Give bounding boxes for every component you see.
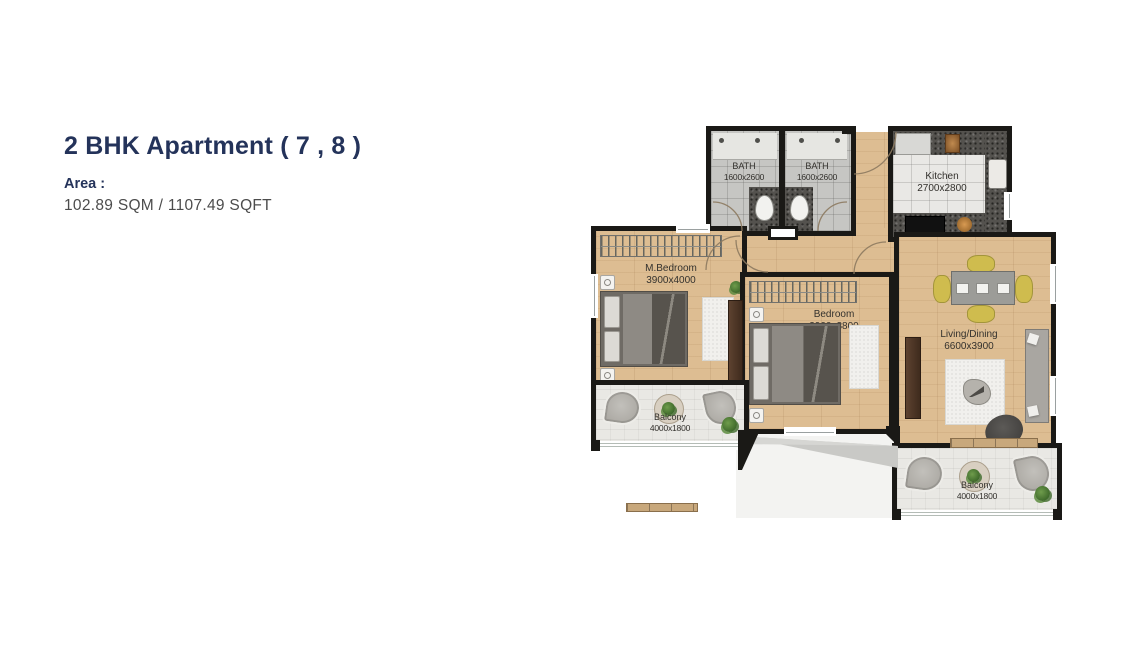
balcony-1-label: Balcony 4000x1800 xyxy=(615,412,725,433)
exterior-patch xyxy=(736,430,898,518)
sink-icon xyxy=(988,159,1007,189)
sofa xyxy=(1025,329,1049,423)
bath-1-room: BATH 1600x2600 xyxy=(706,126,784,236)
kitchen-room: Kitchen 2700x2800 xyxy=(888,126,1012,242)
living-dining-room: Living/Dining 6600x3900 xyxy=(894,232,1056,450)
balcony-glass-rail xyxy=(591,441,749,450)
area-value: 102.89 SQM / 1107.49 SQFT xyxy=(64,197,272,215)
nightstand xyxy=(749,307,764,322)
area-label: Area : xyxy=(64,176,105,192)
bed-pillows xyxy=(753,328,769,400)
fridge-icon xyxy=(895,133,931,155)
nightstand xyxy=(600,275,615,290)
coffee-table xyxy=(963,379,991,405)
bed-throw xyxy=(652,294,685,364)
shower-fixture-icon xyxy=(719,138,724,143)
place-setting-icon xyxy=(976,283,989,294)
window xyxy=(676,224,710,233)
window xyxy=(1050,264,1059,304)
wall-segment xyxy=(842,126,856,134)
bed xyxy=(600,291,688,367)
wardrobe xyxy=(749,281,857,303)
page-title: 2 BHK Apartment ( 7 , 8 ) xyxy=(64,132,361,161)
bedroom-room: Bedroom 3900x3800 xyxy=(740,272,894,434)
balcony-2: Balcony 4000x1800 xyxy=(892,443,1062,519)
place-setting-icon xyxy=(956,283,969,294)
bed xyxy=(749,323,841,405)
tv-console xyxy=(905,337,921,419)
basket-icon xyxy=(945,134,960,153)
shower-area xyxy=(713,133,777,160)
place-setting-icon xyxy=(997,283,1010,294)
balcony-2-label: Balcony 4000x1800 xyxy=(922,480,1032,501)
shower-fixture-icon xyxy=(799,138,804,143)
shower-fixture-icon xyxy=(835,138,840,143)
sliding-door xyxy=(626,503,698,512)
bath-hall-door-gap xyxy=(768,226,798,240)
bath-1-label: BATH 1600x2600 xyxy=(711,161,777,182)
window xyxy=(784,427,836,436)
bed-throw xyxy=(804,326,838,402)
bath-2-room: BATH 1600x2600 xyxy=(780,126,856,236)
coffee-table-decor xyxy=(969,386,984,397)
bath-2-label: BATH 1600x2600 xyxy=(785,161,849,182)
plant-icon xyxy=(722,417,737,432)
dining-chair xyxy=(1015,275,1033,303)
bed-duvet xyxy=(772,326,803,402)
toilet-icon xyxy=(790,195,809,221)
bed-pillows xyxy=(604,296,620,362)
toilet-icon xyxy=(755,195,774,221)
sliding-door xyxy=(950,438,1038,448)
window xyxy=(589,274,598,318)
entry-door-gap xyxy=(856,124,890,132)
master-bedroom-room: M.Bedroom 3900x4000 xyxy=(591,226,747,386)
kitchen-label: Kitchen 2700x2800 xyxy=(899,171,985,195)
master-bedroom-label: M.Bedroom 3900x4000 xyxy=(606,263,736,287)
window xyxy=(1050,376,1059,416)
floorplan: BATH 1600x2600 BATH 1600x2600 xyxy=(588,124,1066,524)
wardrobe xyxy=(600,235,722,257)
dining-chair xyxy=(967,305,995,323)
rug xyxy=(849,325,879,389)
nightstand xyxy=(749,408,764,423)
plant-icon xyxy=(1035,486,1050,501)
dining-table xyxy=(951,271,1015,305)
dresser xyxy=(728,300,743,388)
bed-duvet xyxy=(623,294,652,364)
balcony-1: Balcony 4000x1800 xyxy=(591,380,749,450)
balcony-glass-rail xyxy=(892,510,1062,519)
shower-fixture-icon xyxy=(755,138,760,143)
dining-chair xyxy=(933,275,951,303)
page: 2 BHK Apartment ( 7 , 8 ) Area : 102.89 … xyxy=(0,0,1125,656)
shower-area xyxy=(787,133,847,160)
living-dining-label: Living/Dining 6600x3900 xyxy=(909,329,1029,353)
window xyxy=(1004,192,1013,220)
fruit-plate-icon xyxy=(957,217,972,232)
